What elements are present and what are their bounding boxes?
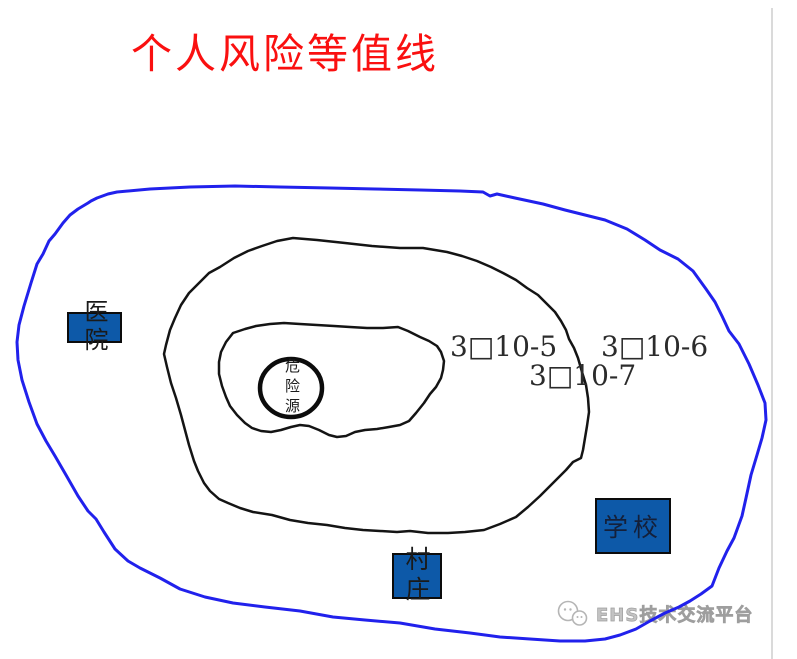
contour-label-3e-7: 3□10-7 xyxy=(529,359,636,392)
inner-contour-line xyxy=(219,323,444,437)
hospital-label: 医院 xyxy=(82,299,106,355)
middle-contour-line xyxy=(164,238,589,533)
risk-contour-diagram: EHS技术交流平台 个人风险等值线 医院 村庄 学校 危险源 3□10-5 3□… xyxy=(0,0,797,659)
hazard-source-label: 危险源 xyxy=(284,358,299,418)
school-label: 学校 xyxy=(603,508,663,544)
village-label: 村庄 xyxy=(404,546,429,606)
school-block: 学校 xyxy=(595,498,671,554)
